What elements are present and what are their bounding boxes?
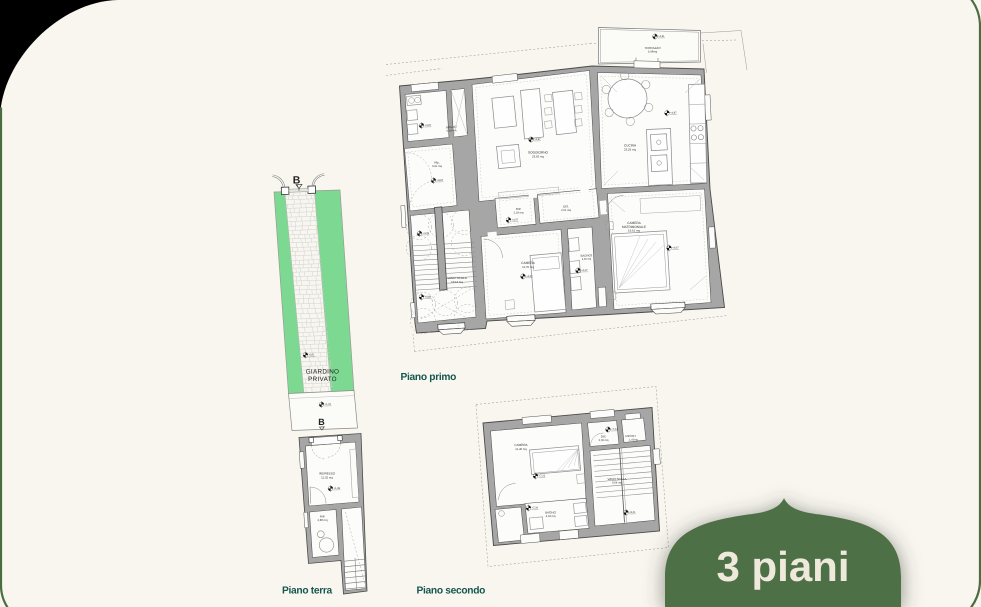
svg-text:11,70 mq: 11,70 mq [522,265,534,269]
svg-text:+4,07: +4,07 [512,219,519,222]
svg-text:Piano terra: Piano terra [282,586,333,597]
svg-text:+1,08: +1,08 [334,487,341,490]
svg-text:DIS.: DIS. [601,435,607,439]
svg-text:9,04 mq: 9,04 mq [612,482,622,485]
svg-text:2,06 mq: 2,06 mq [599,439,609,442]
svg-text:+7,24: +7,24 [539,475,546,478]
svg-text:+4,07: +4,07 [581,269,588,272]
svg-text:+7,24: +7,24 [611,428,618,431]
svg-text:19,61 mq: 19,61 mq [628,228,640,232]
svg-text:+1,02: +1,02 [325,403,332,406]
svg-text:+4,87: +4,87 [425,124,432,127]
svg-text:PRIVATO: PRIVATO [308,376,337,383]
svg-text:Piano primo: Piano primo [401,372,457,383]
svg-text:+4,87: +4,87 [670,112,677,115]
svg-text:11,32 mq: 11,32 mq [321,475,333,479]
svg-text:+0,68: +0,68 [425,296,432,299]
svg-text:4,40 mq: 4,40 mq [582,258,592,262]
svg-text:Piano secondo: Piano secondo [417,586,486,597]
svg-text:2,61 mq: 2,61 mq [561,209,571,212]
svg-text:+7,26: +7,26 [532,507,539,510]
svg-text:+4,07: +4,07 [526,275,533,278]
svg-text:BAGNO: BAGNO [545,511,557,515]
svg-text:+4,87: +4,87 [437,179,444,182]
svg-text:+4,05: +4,05 [423,232,430,235]
svg-text:RIP.: RIP. [516,207,522,211]
svg-text:23,26 mq: 23,26 mq [624,147,636,151]
svg-text:+4,31: +4,31 [658,35,665,38]
svg-text:23,65 mq: 23,65 mq [532,154,544,158]
svg-text:2,80 mq: 2,80 mq [317,518,328,522]
svg-text:1,60mq: 1,60mq [629,438,638,441]
svg-text:5,46mq: 5,46mq [648,50,658,54]
svg-text:+4,07: +4,07 [672,247,679,250]
svg-text:11,40 mq: 11,40 mq [515,447,527,451]
svg-text:GIARDINO: GIARDINO [306,369,340,376]
svg-text:DIS.: DIS. [563,204,569,208]
svg-text:+5,01: +5,01 [629,511,636,514]
svg-text:B: B [318,417,325,427]
svg-text:3 piani: 3 piani [716,543,849,590]
svg-text:Rip.: Rip. [434,161,440,165]
svg-text:+0,5: +0,5 [309,354,315,357]
svg-text:6,91 mq: 6,91 mq [432,165,442,168]
svg-text:+4,87: +4,87 [534,138,541,141]
svg-text:2,18 mq: 2,18 mq [514,211,524,214]
svg-text:10,16 mq: 10,16 mq [451,280,463,284]
svg-text:VANO SCALA: VANO SCALA [608,477,627,481]
svg-text:4,04 mq: 4,04 mq [546,515,556,518]
